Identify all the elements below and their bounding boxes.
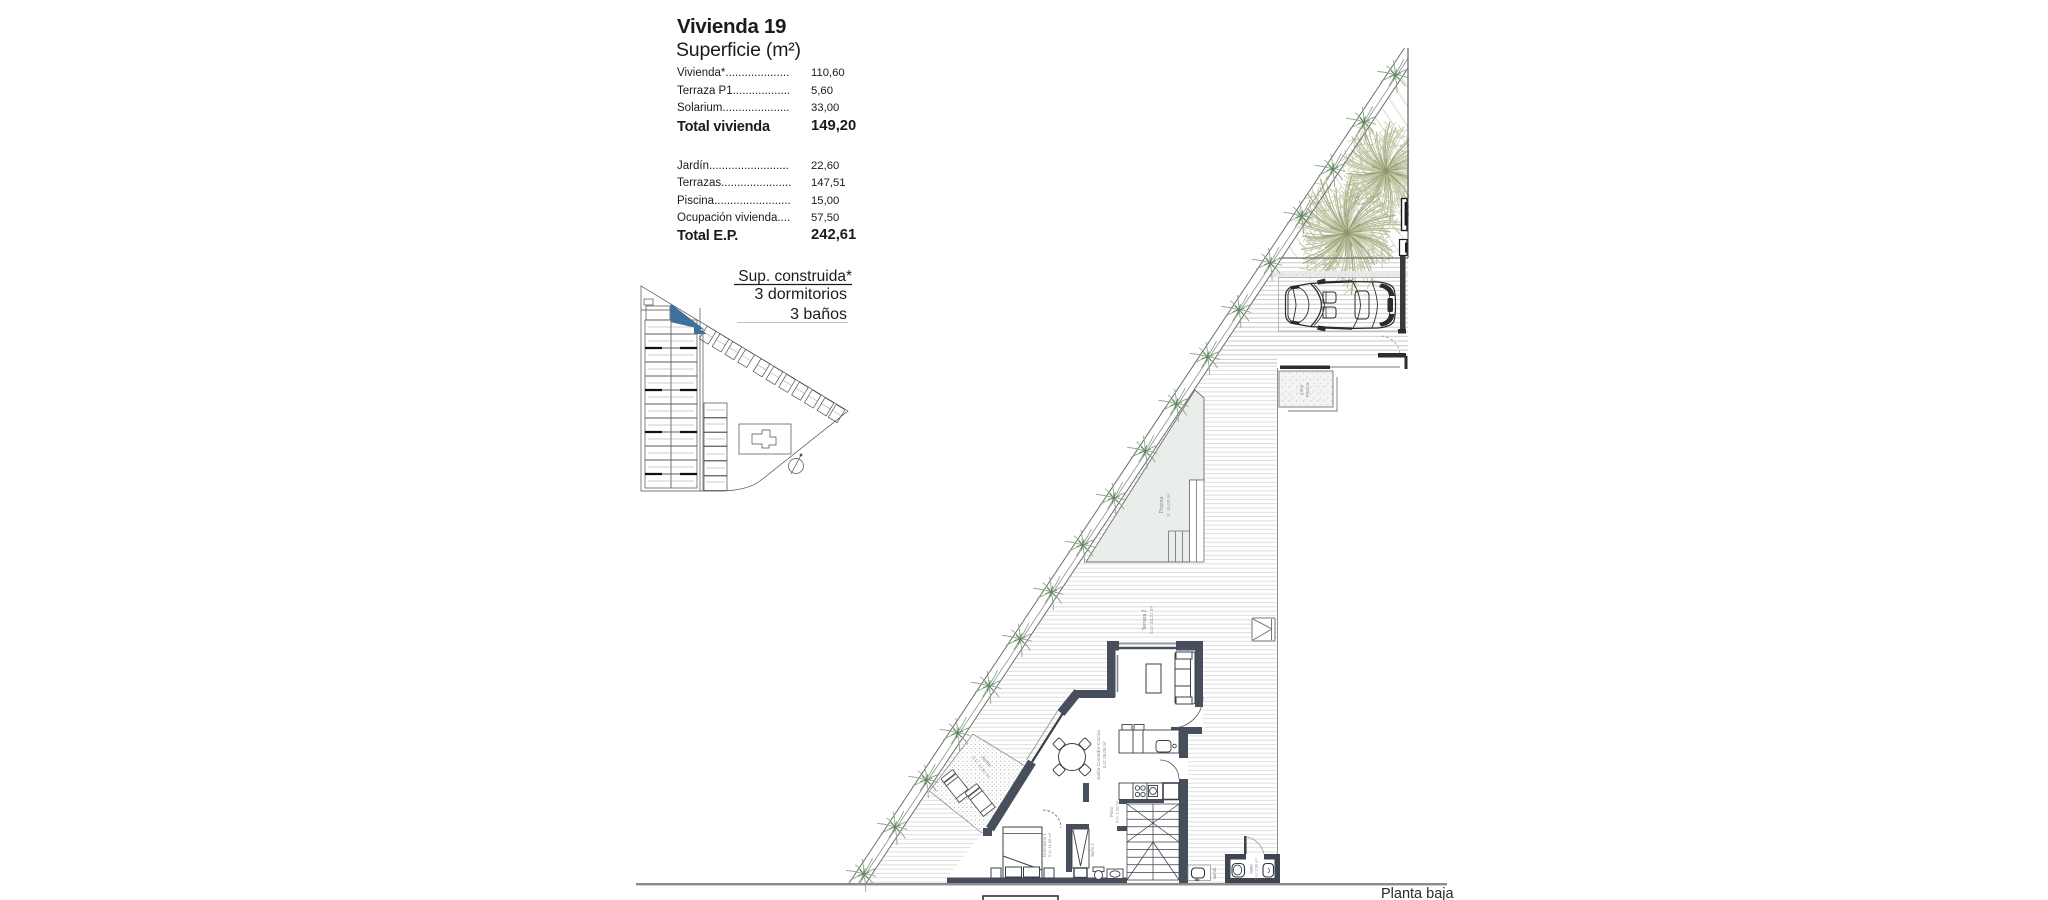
svg-text:S.U: 2,60 m²: S.U: 2,60 m² bbox=[1255, 858, 1259, 880]
svg-text:Total vivienda: Total vivienda bbox=[677, 119, 771, 135]
svg-text:110,60: 110,60 bbox=[811, 67, 845, 79]
svg-text:33,00: 33,00 bbox=[811, 102, 839, 114]
svg-text:57,50: 57,50 bbox=[811, 212, 839, 224]
svg-text:Sup. construida*: Sup. construida* bbox=[738, 268, 852, 285]
svg-text:Baño 2: Baño 2 bbox=[1090, 843, 1095, 857]
svg-text:Total E.P.: Total E.P. bbox=[677, 228, 738, 244]
svg-text:Terrazas......................: Terrazas...................... bbox=[677, 177, 791, 189]
svg-text:Piscina.......................: Piscina........................ bbox=[677, 195, 791, 207]
svg-text:Piscina: Piscina bbox=[1305, 382, 1310, 397]
svg-text:3 baños: 3 baños bbox=[790, 306, 847, 323]
svg-text:Vivienda 19: Vivienda 19 bbox=[677, 15, 786, 38]
svg-text:S: 15,00 m²: S: 15,00 m² bbox=[1166, 493, 1171, 517]
svg-text:S.U: 28,05 m²: S.U: 28,05 m² bbox=[1102, 741, 1107, 769]
svg-text:Jardín........................: Jardín......................... bbox=[677, 160, 789, 172]
svg-text:Aseo: Aseo bbox=[1249, 864, 1254, 874]
svg-text:Aseo: Aseo bbox=[1299, 384, 1304, 395]
svg-text:Paso: Paso bbox=[1109, 806, 1114, 817]
svg-text:Ocupación vivienda....: Ocupación vivienda.... bbox=[677, 212, 790, 224]
svg-text:S.U: 11,98 m²: S.U: 11,98 m² bbox=[1047, 832, 1052, 857]
svg-text:5,60: 5,60 bbox=[811, 85, 833, 97]
svg-text:S.U: 43,21 m²: S.U: 43,21 m² bbox=[1149, 605, 1154, 634]
svg-text:Planta baja: Planta baja bbox=[1381, 886, 1454, 900]
svg-text:147,51: 147,51 bbox=[811, 177, 846, 189]
svg-text:242,61: 242,61 bbox=[811, 227, 856, 243]
svg-text:Piscina: Piscina bbox=[1159, 497, 1165, 514]
svg-text:Terraza 2: Terraza 2 bbox=[1142, 609, 1148, 630]
svg-text:15,00: 15,00 bbox=[811, 195, 839, 207]
svg-text:Terraza P1..................: Terraza P1.................. bbox=[677, 85, 790, 97]
svg-text:Solarium.....................: Solarium..................... bbox=[677, 102, 789, 114]
svg-text:149,20: 149,20 bbox=[811, 118, 856, 134]
svg-text:sumid.: sumid. bbox=[1212, 867, 1217, 879]
svg-text:S.U: 1,50 m²: S.U: 1,50 m² bbox=[1115, 800, 1120, 823]
svg-text:Vivienda*....................: Vivienda*.................... bbox=[677, 67, 789, 79]
svg-text:22,60: 22,60 bbox=[811, 160, 839, 172]
svg-text:3 dormitorios: 3 dormitorios bbox=[755, 286, 847, 303]
svg-text:Superficie (m²): Superficie (m²) bbox=[676, 39, 801, 61]
